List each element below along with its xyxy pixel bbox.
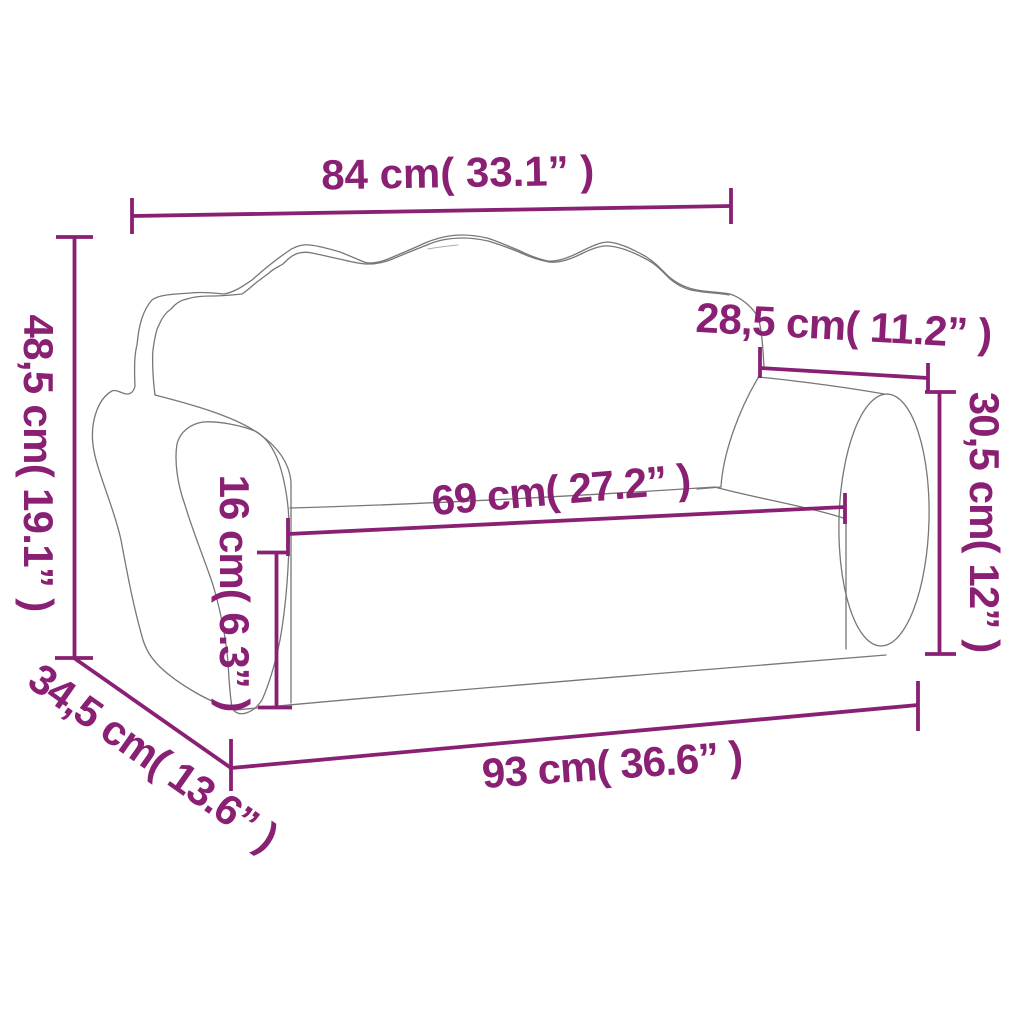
svg-text:30,5 cm( 12” ): 30,5 cm( 12” ) [961, 392, 1008, 653]
svg-text:48,5 cm( 19.1” ): 48,5 cm( 19.1” ) [15, 315, 62, 612]
svg-text:69 cm( 27.2” ): 69 cm( 27.2” ) [430, 455, 692, 524]
svg-text:84 cm( 33.1” ): 84 cm( 33.1” ) [321, 147, 595, 199]
svg-text:16 cm( 6.3” ): 16 cm( 6.3” ) [211, 475, 258, 712]
svg-text:28,5 cm( 11.2” ): 28,5 cm( 11.2” ) [695, 294, 993, 357]
